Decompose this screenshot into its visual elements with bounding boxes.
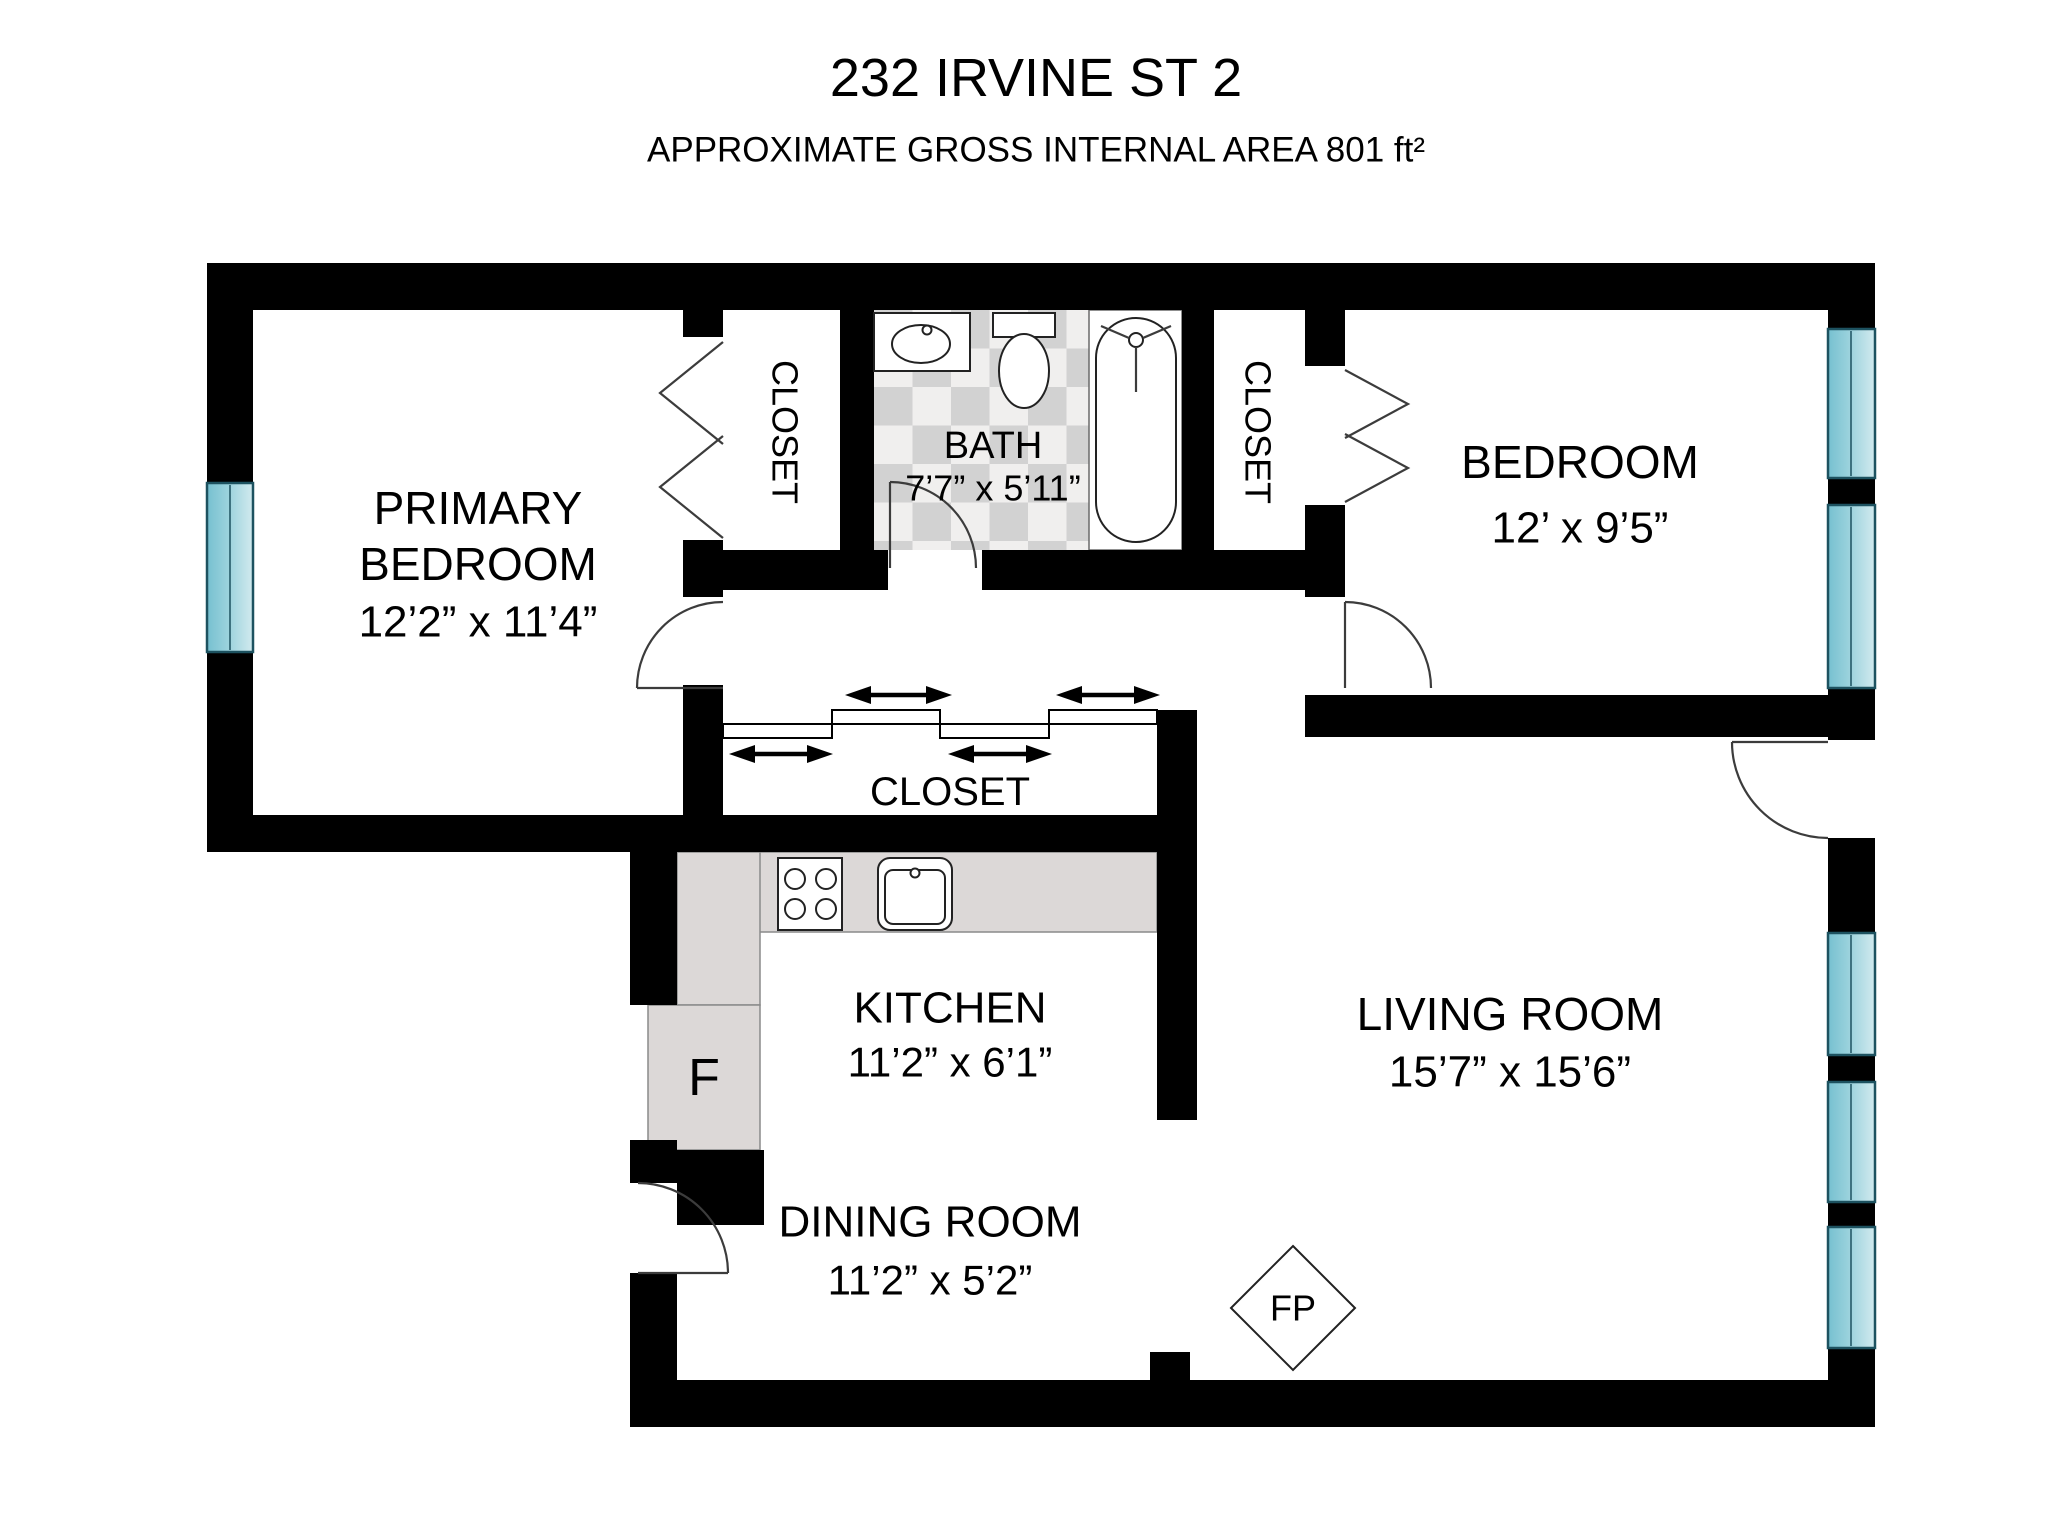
floorplan-page: 232 IRVINE ST 2APPROXIMATE GROSS INTERNA…	[0, 0, 2064, 1524]
wall-top	[207, 263, 1875, 310]
sliding-panel-back-2	[1049, 710, 1157, 724]
wall-hall-top-a	[683, 550, 888, 590]
wall-closet1-bath	[840, 310, 874, 550]
sliding-panel-front-2	[940, 724, 1049, 738]
door-arc-entry	[1732, 742, 1828, 838]
wall-dining-left-b	[630, 1140, 677, 1183]
bifold-closet2-b	[1345, 434, 1408, 502]
label-living-room: LIVING ROOM	[1357, 988, 1664, 1040]
wall-band-mid	[207, 815, 1197, 852]
kitchen-sink-faucet	[911, 869, 920, 878]
wall-bath-closet2	[1182, 310, 1214, 550]
slide-arrow-head	[845, 686, 871, 704]
bath-sink-faucet	[923, 326, 932, 335]
wall-right-a	[1828, 310, 1875, 329]
wall-fireplace-stub	[1150, 1352, 1190, 1380]
wall-left-upper	[207, 263, 253, 483]
bath-sink-basin	[892, 325, 950, 363]
label-bath-dims: 7’7” x 5’11”	[905, 468, 1080, 509]
wall-closet2-right-a	[1305, 310, 1345, 366]
kitchen-counter-left	[677, 852, 760, 1005]
toilet-bowl	[999, 334, 1049, 408]
plan-labels: 232 IRVINE ST 2APPROXIMATE GROSS INTERNA…	[359, 48, 1699, 1329]
sliding-panel-front-1	[723, 724, 832, 738]
label-closet-2: CLOSET	[1238, 360, 1279, 504]
slide-arrow-head	[807, 745, 833, 763]
bifold-closet1-a	[660, 342, 723, 444]
label-fridge: F	[688, 1049, 720, 1107]
wall-right-e	[1828, 1055, 1875, 1082]
label-living-room-dims: 15’7” x 15’6”	[1389, 1048, 1631, 1097]
wall-bedroom-bottom	[1305, 695, 1828, 737]
bifold-closet1-b	[660, 436, 723, 538]
stove-burner	[785, 869, 805, 889]
slide-arrow-head	[1134, 686, 1160, 704]
label-fireplace: FP	[1270, 1288, 1316, 1329]
stove	[778, 858, 842, 930]
slide-arrow-head	[1056, 686, 1082, 704]
wall-dining-left-a	[630, 852, 677, 1005]
label-closet-1: CLOSET	[765, 360, 806, 504]
bifold-closet2-a	[1345, 370, 1408, 438]
wall-kitchen-divider	[1157, 710, 1197, 1120]
wall-bottom	[630, 1380, 1875, 1427]
label-bath: BATH	[944, 425, 1043, 467]
wall-right-f	[1828, 1202, 1875, 1227]
stove-burner	[816, 899, 836, 919]
label-primary-bedroom: BEDROOM	[359, 538, 597, 590]
wall-closet2-right-b	[1305, 505, 1345, 550]
slide-arrow-head	[729, 745, 755, 763]
label-bedroom: BEDROOM	[1461, 436, 1699, 488]
label-bedroom-dims: 12’ x 9’5”	[1492, 504, 1669, 553]
sliding-panel-back-1	[832, 710, 940, 724]
wall-hall-bedroom	[1305, 550, 1345, 597]
wall-right-b	[1828, 478, 1875, 505]
wall-right-g	[1828, 1348, 1875, 1427]
door-arc-bedroom	[1345, 602, 1431, 688]
stove-burner	[816, 869, 836, 889]
page-title: 232 IRVINE ST 2	[830, 48, 1242, 108]
label-kitchen-dims: 11’2” x 6’1”	[848, 1039, 1053, 1086]
wall-pb-right-a	[683, 310, 723, 337]
wall-right-d	[1828, 838, 1875, 933]
label-dining-room-dims: 11’2” x 5’2”	[828, 1257, 1033, 1304]
page-subtitle: APPROXIMATE GROSS INTERNAL AREA 801 ft²	[647, 131, 1425, 170]
floorplan-canvas: 232 IRVINE ST 2APPROXIMATE GROSS INTERNA…	[0, 0, 2064, 1524]
label-closet-central: CLOSET	[870, 770, 1030, 814]
label-primary-bedroom-dims: 12’2” x 11’4”	[359, 598, 598, 647]
wall-hall-top-b	[982, 550, 1305, 590]
slide-arrow-head	[1026, 745, 1052, 763]
slide-arrow-head	[926, 686, 952, 704]
stove-burner	[785, 899, 805, 919]
label-dining-room: DINING ROOM	[778, 1198, 1081, 1247]
label-kitchen: KITCHEN	[853, 984, 1046, 1033]
wall-right-c	[1828, 688, 1875, 740]
label-primary-bedroom: PRIMARY	[374, 482, 583, 534]
wall-pb-right-c	[683, 685, 723, 815]
door-arc-primary	[637, 602, 723, 688]
bathtub-faucet	[1129, 333, 1143, 347]
wall-dining-block	[677, 1150, 764, 1225]
slide-arrow-head	[948, 745, 974, 763]
